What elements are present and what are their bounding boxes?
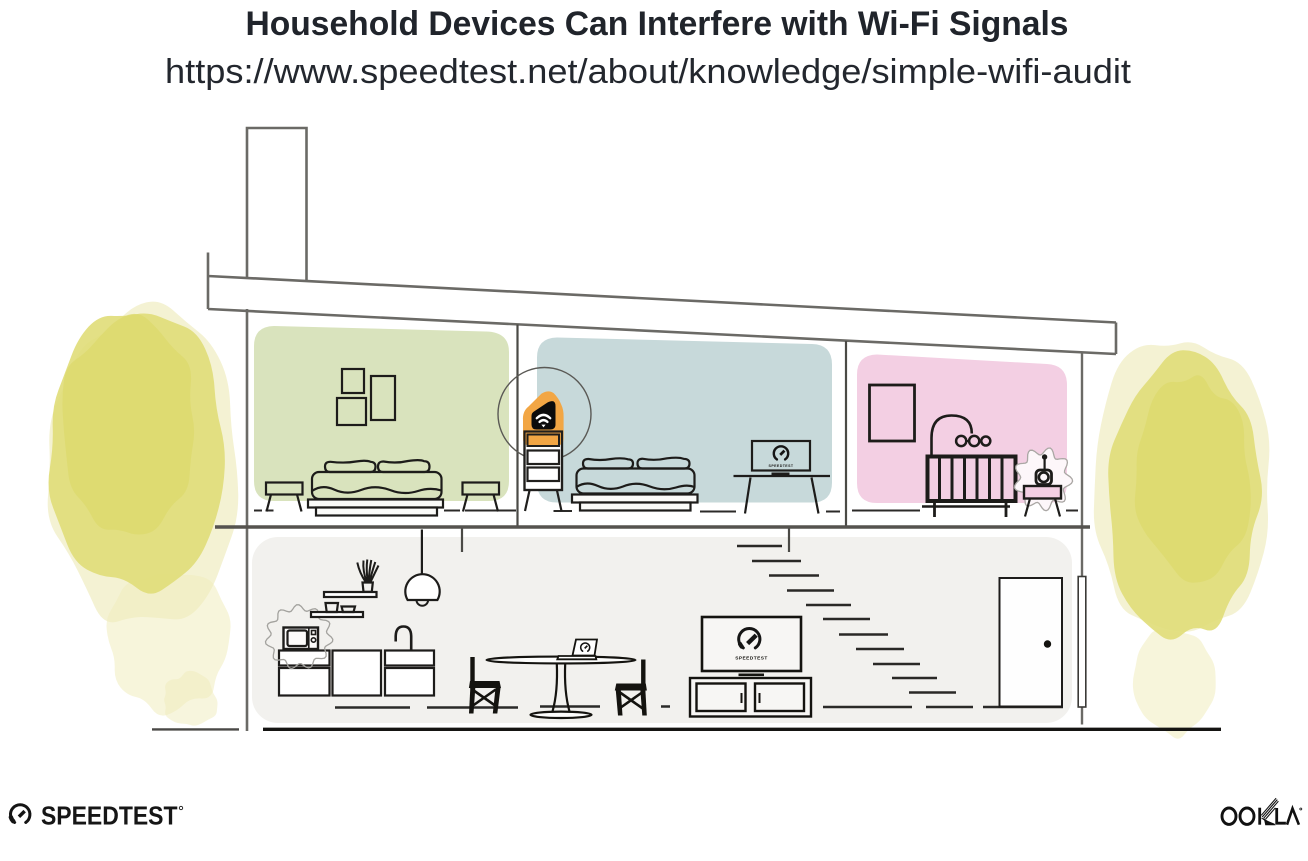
svg-text:SPEEDTEST: SPEEDTEST — [41, 803, 178, 831]
svg-text:https://www.speedtest.net/abou: https://www.speedtest.net/about/knowledg… — [165, 53, 1132, 91]
svg-text:Household Devices Can Interfer: Household Devices Can Interfere with Wi-… — [246, 5, 1069, 43]
svg-text:SPEEDTEST: SPEEDTEST — [735, 655, 768, 661]
svg-text:SPEEDTEST: SPEEDTEST — [769, 464, 794, 468]
